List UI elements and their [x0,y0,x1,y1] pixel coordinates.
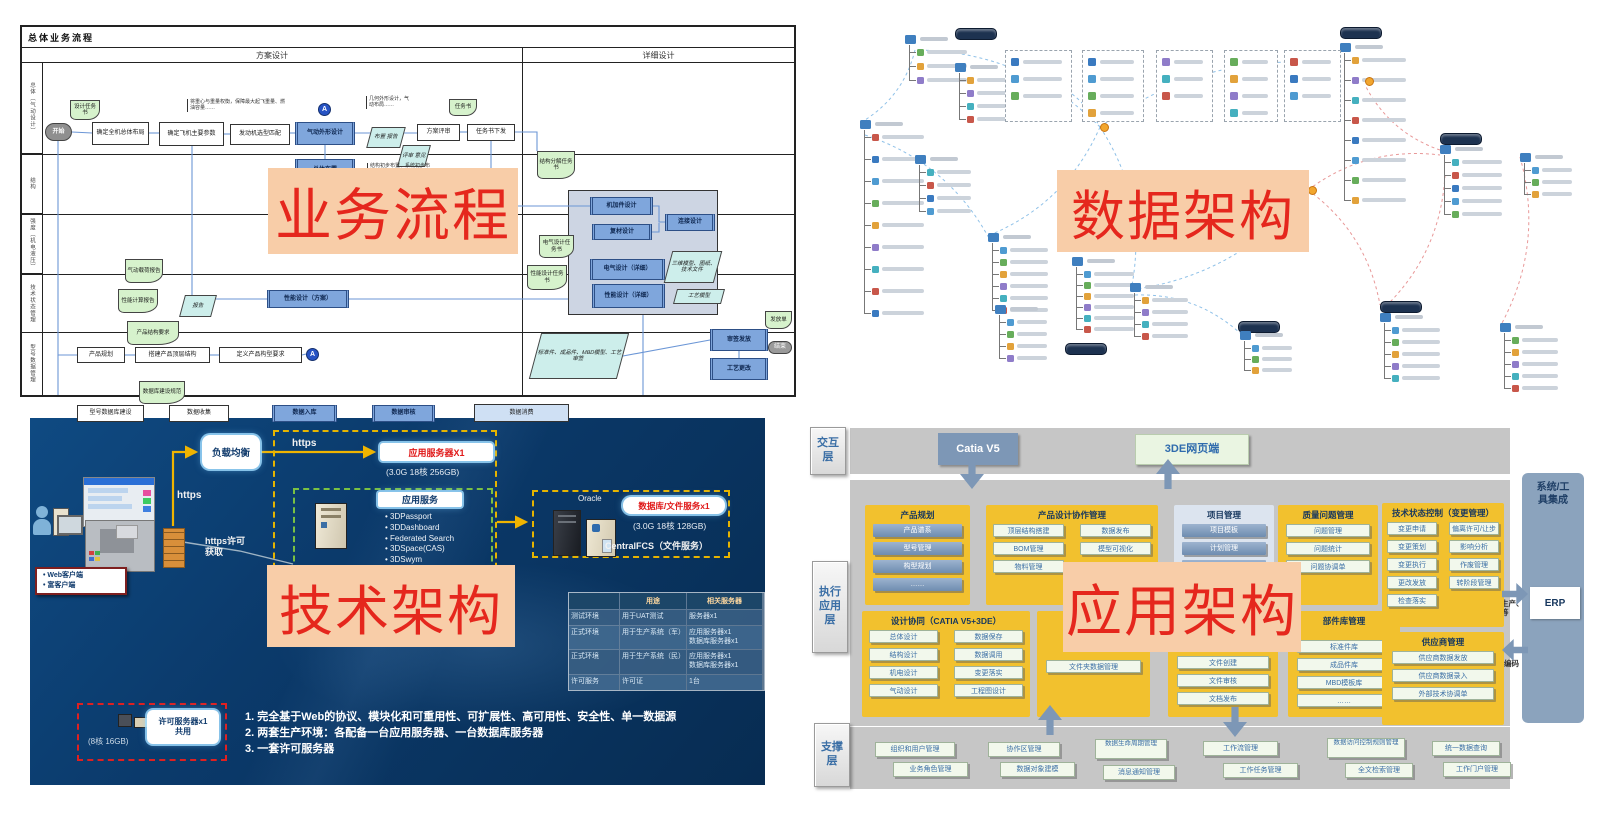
mindmap-node-icon [927,195,934,202]
mindmap-root-icon [1440,145,1451,154]
mindmap-branch-tick [1444,162,1451,163]
mindmap-branch-tick [864,203,871,204]
mindmap-branch-tick [992,250,999,251]
mindmap-node-label [1010,284,1048,288]
flow-node-blue: 机加件设计 [590,197,653,215]
mindmap-branch-tick [999,334,1006,335]
mindmap-branch-tick [864,313,871,314]
mindmap-node-icon [1084,304,1091,311]
mindmap-branch-tick [1134,312,1141,313]
mindmap-node-label [1542,192,1572,196]
erp-node: ERP [1530,587,1580,619]
mindmap-node-label [1174,77,1203,81]
mindmap-node-label [1094,327,1134,331]
mindmap-node-icon [967,90,974,97]
group-title: 设计协同（CATIA V5+3DE） [862,615,1030,627]
mindmap-branch-tick [1524,170,1531,171]
mindmap-branch-tick [1504,388,1511,389]
warning-icon [1100,123,1109,132]
firewall-icon [163,528,185,568]
module-button: 影响分析 [1449,540,1499,553]
client-types-label: Web客户端富客户端 [35,567,127,595]
mindmap-node-label [1402,340,1440,344]
mindmap-node-icon [1230,75,1238,83]
mindmap-node-label [1242,60,1268,64]
mindmap-node-label [1462,173,1502,177]
flow-node-box: 搭建产品顶层结构 [135,347,210,363]
mindmap-branch-tick [1384,330,1391,331]
mindmap-branch-tick [1076,285,1083,286]
mindmap-node-label [1094,294,1134,298]
mindmap-node-label [1522,362,1558,366]
mindmap-node-icon [1512,385,1519,392]
mindmap-branch-tick [1076,274,1083,275]
mindmap-node-label [1152,310,1188,314]
mindmap-root-label [1255,333,1283,337]
overlay-label-app-architecture: 应用架构 [1063,562,1301,652]
note-item: 1. 完全基于Web的协议、模块化和可重用性、可扩展性、高可用性、安全性、单一数… [245,710,685,725]
mindmap-root-badge [1340,27,1382,39]
mindmap-node-icon [927,208,934,215]
mindmap-root-icon [915,155,926,164]
mindmap-root-badge [1380,301,1422,313]
module-button: 外部技术协调单 [1392,687,1494,700]
flow-annotation: 将重心与重量权衡，保障最大起飞重量、燃油容量…… [187,99,285,112]
mindmap-node-icon [872,200,879,207]
module-button: 文件创建 [1177,656,1269,669]
mindmap-node-label [1362,98,1406,102]
mindmap-node-label [1402,352,1440,356]
mindmap-branch-tick [1076,307,1083,308]
mindmap-node-label [1094,305,1134,309]
mindmap-node-label [937,183,971,187]
mindmap-branch-tick [919,172,926,173]
phase-scheme-design: 方案设计 [22,48,523,62]
oracle-server-icon [553,510,581,556]
mindmap-node-label [1542,180,1572,184]
mindmap-node-icon [1162,92,1170,100]
mindmap-node-icon [1011,75,1019,83]
mindmap-node-icon [872,244,879,251]
module-button: 文件审核 [1177,674,1269,687]
mindmap-branch-tick [919,211,926,212]
module-button: MBD模板库 [1297,676,1391,689]
app-group: 技术状态控制（变更管理）变更申请偏离许可/让步变更策划影响分析变更执行作废管理更… [1382,503,1504,627]
table-cell: 用于生产系统（民） [620,650,686,674]
module-button: 顶层结构搭建 [993,524,1064,537]
mindmap-node-label [937,196,971,200]
support-module-button: 业务角色管理 [893,762,968,777]
mindmap-branch-tick [1444,214,1451,215]
mindmap-node-label [1522,374,1558,378]
warning-icon [1308,186,1317,195]
mindmap-node-label [1242,77,1268,81]
oracle-label: Oracle [578,494,602,503]
mindmap-node-label [1262,357,1292,361]
mindmap-branch-tick [992,298,999,299]
mindmap-root-icon [1380,313,1391,322]
mindmap-trunk [1384,323,1385,379]
flow-node-blue: 工艺更改 [710,358,768,380]
mindmap-node-label [1017,356,1047,360]
mindmap-node-label [1402,376,1440,380]
client-monitor-icon [57,515,83,535]
flow-node-box: 定义产品构型要求 [219,347,302,363]
mindmap-root-label [1087,259,1115,263]
mindmap-node-icon [1230,92,1238,100]
support-module-button: 组织和用户管理 [875,742,955,757]
app-group: 设计协同（CATIA V5+3DE）总体设计数据保存结构设计数据调用机电设计变更… [862,611,1030,717]
mindmap-branch-tick [959,119,966,120]
mindmap-node-label [1010,260,1048,264]
mindmap-node-label [882,311,924,315]
mindmap-node-label [1017,332,1047,336]
mindmap-node-icon [1352,77,1359,84]
flow-node-blue: 复材设计 [592,224,652,240]
module-button: 工程图设计 [954,684,1024,697]
mindmap-branch-tick [1344,100,1351,101]
module-button: 供应商数据发放 [1392,651,1494,664]
flow-node-box: 确定飞机主要参数 [159,122,224,146]
mindmap-root-badge [1065,343,1107,355]
support-module-button: 全文检索管理 [1345,763,1413,778]
mindmap-node-icon [872,134,879,141]
mindmap-branch-tick [1504,364,1511,365]
table-header-cell: 相关服务器 [687,593,762,609]
support-module-button: 数据生命周期管理 [1095,739,1167,759]
mindmap-branch-tick [1524,182,1531,183]
mindmap-branch-tick [1344,80,1351,81]
mindmap-node-icon [1000,259,1007,266]
mindmap-node-label [1402,328,1440,332]
module-button: 供应商数据录入 [1392,669,1494,682]
mindmap-node-label [1100,94,1134,98]
mindmap-root-label [1515,325,1543,329]
mindmap-node-icon [917,77,924,84]
module-button: 标准件库 [1297,640,1391,653]
mindmap-node-icon [1352,177,1359,184]
license-spec: (8核 16GB) [88,736,128,747]
flow-node-blue: 连接设计 [665,214,715,231]
mindmap-node-icon [1084,326,1091,333]
app-group: 产品规划产品谱系型号管理构型规划…… [865,505,970,605]
module-button: 偏离许可/让步 [1449,522,1499,535]
flow-node-start: 开始 [45,123,72,141]
mindmap-root-icon [905,35,916,44]
flow-node-doc: 任务书 [449,99,477,116]
table-cell: 应用服务器x1 数据库服务器x1 [687,626,762,650]
mindmap-node-icon [1392,363,1399,370]
mindmap-node-label [1262,368,1292,372]
mindmap-node-label [882,223,924,227]
flow-node-doc: 产品结构要求 [127,321,179,345]
table-cell: 许可证 [620,675,686,690]
mindmap-branch-tick [1444,201,1451,202]
mindmap-branch-tick [992,262,999,263]
module-button: 变更落实 [954,666,1024,679]
client-type-item: 富客户端 [43,581,125,591]
module-button: 问题统计 [1286,542,1370,555]
mindmap-branch-tick [864,137,871,138]
flow-node-blue: 气动外形设计 [295,122,355,145]
mindmap-root-label [1355,45,1383,49]
mindmap-branch-tick [909,80,916,81]
mindmap-branch-tick [1244,359,1251,360]
mindmap-node-label [882,179,924,183]
mindmap-root-icon [1340,43,1351,52]
overlay-label-business-process: 业务流程 [268,168,518,254]
mindmap-node-label [882,135,924,139]
mindmap-node-icon [1252,345,1259,352]
mindmap-node-icon [1142,333,1149,340]
mindmap-branch-tick [1524,194,1531,195]
mindmap-branch-tick [864,181,871,182]
flow-node-doc: 设计任务书 [70,100,100,120]
module-button: 转阶段管理 [1449,576,1499,589]
license-server-title: 许可服务器x1 共用 [147,710,219,744]
mindmap-node-icon [1532,167,1539,174]
mindmap-node-icon [1007,343,1014,350]
table-cell: 服务器x1 [687,610,762,625]
table-cell: 测试环境 [569,610,619,625]
support-module-button: 数据对象建模 [1000,762,1075,777]
mindmap-branch-tick [959,93,966,94]
mindmap-branch-tick [1344,140,1351,141]
group-title: 技术状态控制（变更管理） [1382,507,1504,519]
table-cell: 应用服务器x1 数据库服务器x1 [687,650,762,674]
mindmap-node-icon [1007,355,1014,362]
mindmap-node-label [1174,60,1203,64]
mindmap-branch-tick [919,198,926,199]
mindmap-node-label [1023,77,1062,81]
support-module-button: 工作流管理 [1203,741,1278,756]
mindmap-node-icon [872,266,879,273]
mindmap-root-label [920,37,948,41]
mindmap-node-label [1462,186,1502,190]
app-service-item: 3DDashboard [385,523,454,534]
module-button: 文档发布 [1177,692,1269,705]
person-icon [36,506,48,518]
app-services-title: 应用服务 [378,492,462,507]
module-button: 数据调用 [954,648,1024,661]
mindmap-node-label [882,201,924,205]
module-button: 气动设计 [869,684,939,697]
mindmap-node-icon [1392,351,1399,358]
mindmap-node-label [1522,338,1558,342]
db-file-service-title: 数据库/文件服务x1 [623,497,725,514]
mindmap-root-icon [995,305,1006,314]
module-button: 项目模板 [1182,524,1266,537]
mindmap-node-icon [1512,349,1519,356]
mindmap-node-label [1094,316,1134,320]
mindmap-node-label [1010,296,1048,300]
mindmap-node-icon [1088,109,1096,117]
mindmap-root-icon [1130,283,1141,292]
mindmap-node-icon [1452,159,1459,166]
mindmap-node-icon [1512,337,1519,344]
module-button: 数据保存 [954,630,1024,643]
table-header-cell [569,593,619,609]
mindmap-node-icon [1452,172,1459,179]
flow-node-box: 方案评审 [417,124,460,141]
mindmap-branch-tick [1244,348,1251,349]
flow-node-circle: A [318,103,331,116]
mindmap-node-icon [967,116,974,123]
module-button: 产品谱系 [873,524,961,537]
architecture-notes: 1. 完全基于Web的协议、模块化和可重用性、可扩展性、高可用性、安全性、单一数… [245,710,685,758]
group-title: 产品规划 [865,509,970,521]
mindmap-node-icon [1007,319,1014,326]
mindmap-branch-tick [959,106,966,107]
mindmap-branch-tick [1384,342,1391,343]
module-button: 作废管理 [1449,558,1499,571]
app-service-item: Federated Search [385,534,454,545]
flow-node-blue: 性能设计（方案） [267,290,349,308]
mindmap-node-icon [1084,315,1091,322]
mindmap-branch-tick [919,185,926,186]
mindmap-node-label [927,50,967,54]
erp-in-arrow-label: 编码 [1504,659,1519,668]
table-cell: 1台 [687,675,762,690]
layer-tab-执行应用层: 执行应用层 [812,561,848,653]
table-header-cell: 用途 [620,593,686,609]
mindmap-node-icon [1512,373,1519,380]
support-module-button: 消息通知管理 [1103,765,1175,780]
group-items: 产品谱系型号管理构型规划…… [865,524,970,591]
mindmap-node-icon [1011,58,1019,66]
mindmap-root-icon [955,63,966,72]
mindmap-node-label [1362,158,1406,162]
phase-detail-design: 详细设计 [523,48,794,62]
mindmap-node-label [1010,248,1048,252]
mindmap-root-icon [1072,257,1083,266]
mindmap-node-icon [917,63,924,70]
mindmap-node-label [1023,60,1062,64]
mindmap-node-icon [1142,309,1149,316]
mindmap-node-icon [1512,361,1519,368]
app-service-item: 3DSpace(CAS) [385,544,454,555]
module-button: 结构设计 [869,648,939,661]
flow-node-doc: 性能设计任务书 [527,265,567,290]
mindmap-node-icon [872,288,879,295]
flow-node-box: 任务书下发 [467,124,515,141]
mindmap-node-icon [1000,283,1007,290]
mindmap-branch-tick [1344,120,1351,121]
mindmap-node-label [1017,344,1047,348]
mindmap-node-label [1023,94,1062,98]
mindmap-branch-tick [1444,175,1451,176]
mindmap-root-icon [988,233,999,242]
mindmap-branch-tick [909,52,916,53]
top-node: 3DE网页端 [1135,434,1249,465]
group-title: 产品设计协作管理 [986,509,1158,521]
top-node: Catia V5 [938,433,1018,465]
mindmap-branch-tick [1384,354,1391,355]
mindmap-node-label [1462,160,1502,164]
mindmap-root-label [1395,315,1423,319]
flow-node-doc: 发放单 [765,311,792,329]
mindmap-root-icon [1240,331,1251,340]
mindmap-branch-tick [999,346,1006,347]
mindmap-node-icon [1352,97,1359,104]
mindmap-branch-tick [864,159,871,160]
mindmap-node-icon [1162,58,1170,66]
module-button: …… [873,578,961,591]
mindmap-branch-tick [1244,370,1251,371]
mindmap-branch-tick [1134,300,1141,301]
mindmap-root-badge [955,28,997,40]
overlay-label-tech-architecture: 技术架构 [267,565,515,647]
mindmap-root-label [1145,285,1173,289]
mindmap-node-icon [1290,92,1298,100]
mindmap-node-label [1362,198,1406,202]
mindmap-trunk [1244,341,1245,371]
support-module-button: 协作区管理 [988,742,1060,757]
app-server-spec: (3.0G 18核 256GB) [386,466,459,478]
module-button: 数据发布 [1080,524,1151,537]
mindmap-node-label [1174,94,1203,98]
flow-node-doc: 气动载荷报告 [125,259,163,283]
flow-node-blue: 数据审核 [372,405,435,422]
group-items: 变更申请偏离许可/让步变更策划影响分析变更执行作废管理更改发放转阶段管理检查落实 [1382,522,1504,607]
mindmap-node-icon [872,156,879,163]
flow-node-box: 产品规划 [77,347,125,363]
mindmap-branch-tick [992,286,999,287]
flow-node-box: 数据收集 [169,405,229,422]
app-service-item: 3DPassport [385,512,454,523]
mindmap-node-icon [1452,185,1459,192]
mindmap-node-icon [1290,75,1298,83]
cad-app-screenshot [85,520,155,572]
mindmap-node-icon [1088,58,1096,66]
module-button: 型号管理 [873,542,961,555]
mindmap-node-icon [1088,92,1096,100]
mindmap-branch-tick [1134,324,1141,325]
mindmap-node-icon [917,49,924,56]
app-server-tower-icon [315,503,347,549]
mindmap-node-icon [1532,191,1539,198]
mindmap-node-icon [1252,367,1259,374]
mindmap-branch-tick [1344,180,1351,181]
mindmap-node-icon [967,103,974,110]
group-title: 项目管理 [1174,509,1274,521]
table-cell: 正式环境 [569,650,619,674]
mindmap-node-icon [1352,137,1359,144]
mindmap-root-label [1455,147,1483,151]
flow-node-para: 三维模型、图纸、技术文件 [664,251,723,283]
mindmap-node-icon [1000,271,1007,278]
mindmap-node-label [1302,77,1331,81]
group-title: 供应商管理 [1382,636,1504,648]
group-items: 供应商数据发放供应商数据录入外部技术协调单 [1382,651,1504,700]
mindmap-trunk [1076,267,1077,330]
table-cell: 用于UAT测试 [620,610,686,625]
module-button: 变更策划 [1387,540,1437,553]
module-button: 物料管理 [993,560,1064,573]
mindmap-root-label [1535,155,1563,159]
flow-node-blue: 电气设计（详细） [590,259,665,280]
mindmap-root-label [970,65,998,69]
module-button: 变更申请 [1387,522,1437,535]
support-layer-bar [850,727,1510,789]
mindmap-branch-tick [1384,378,1391,379]
flow-node-blue: 审签发放 [710,329,768,351]
mindmap-node-icon [1142,297,1149,304]
mindmap-branch-tick [1076,329,1083,330]
mindmap-trunk [1504,333,1505,389]
mindmap-node-icon [872,310,879,317]
group-items: 总体设计数据保存结构设计数据调用机电设计变更落实气动设计工程图设计 [862,630,1030,697]
